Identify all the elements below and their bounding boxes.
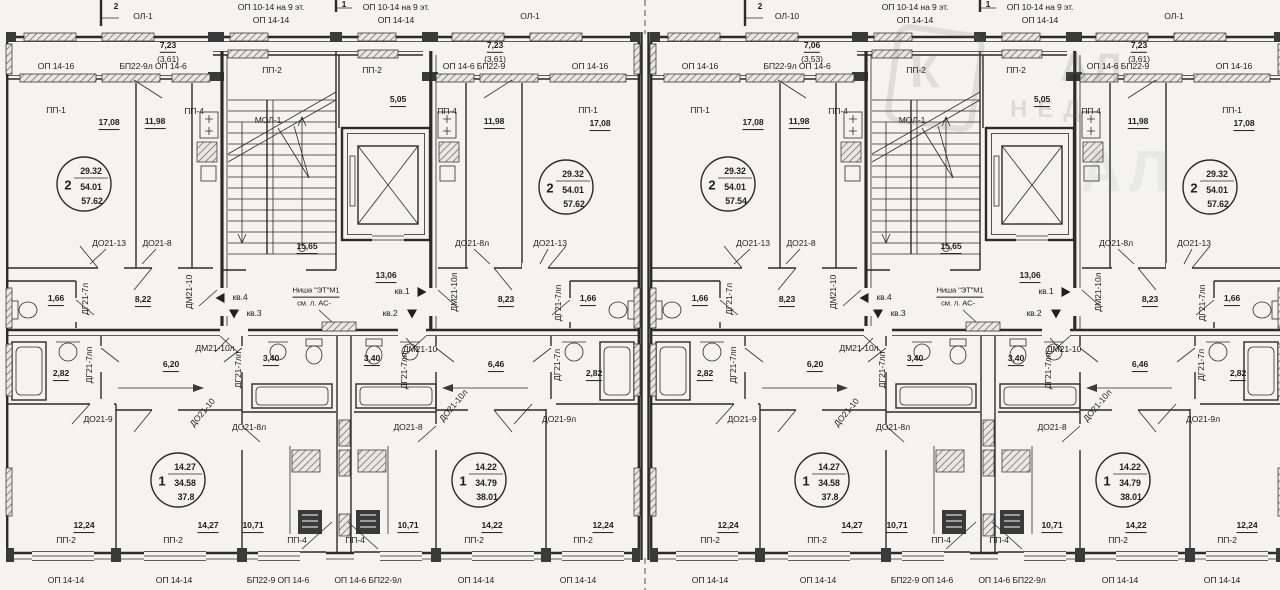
floorplan-linework: .k1{stroke:#2b2b2b;stroke-width:.8;fill:…	[0, 0, 1280, 590]
floorplan-page: { "shared": { "mark1": "1", "mark2": "2"…	[0, 0, 1280, 590]
